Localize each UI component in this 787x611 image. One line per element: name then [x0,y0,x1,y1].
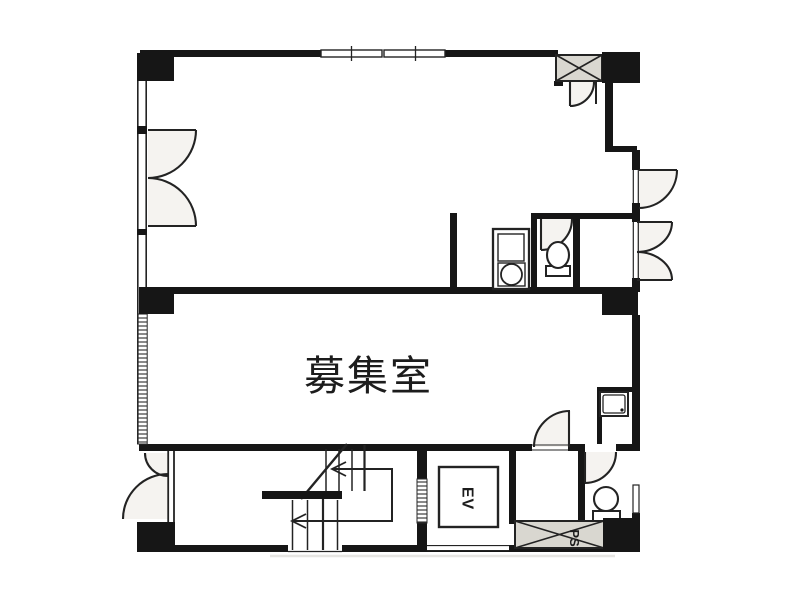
pipe-shaft-label: PS [567,524,581,552]
pipe-shaft [515,521,604,548]
toilet-fixture-upper [546,242,570,276]
main-room-label: 募集室 [304,342,433,402]
washbasin [600,392,628,416]
floor-plan: 募集室 EV PS [0,0,787,611]
floor-plan-drawing [0,0,787,611]
outer-walls [137,50,640,552]
windows [321,46,639,513]
pillars [137,52,640,552]
stairs [262,444,392,552]
kitchen-unit [493,229,529,289]
duct-shaft [556,55,602,81]
toilet-fixture-lower [593,487,620,521]
interior-walls [139,81,638,549]
door-swing-fills [123,82,677,519]
elevator-label: EV [459,482,476,516]
